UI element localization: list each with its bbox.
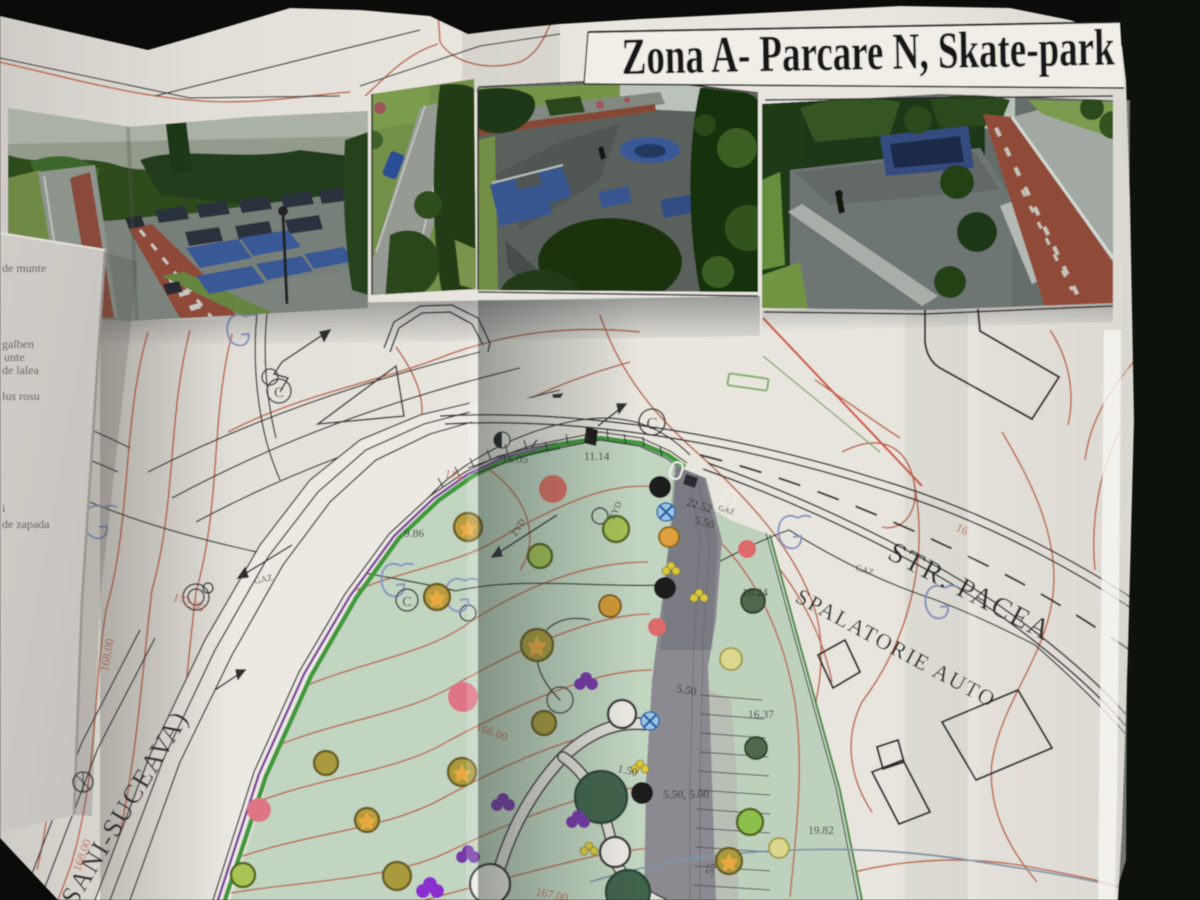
svg-text:lus rosu: lus rosu bbox=[2, 389, 40, 403]
svg-text:19.82: 19.82 bbox=[808, 825, 834, 837]
svg-text:18.24: 18.24 bbox=[742, 587, 768, 599]
svg-text:C: C bbox=[274, 385, 284, 401]
svg-text:galben: galben bbox=[2, 337, 34, 351]
svg-text:Zona A- Parcare N, Skate-park: Zona A- Parcare N, Skate-park bbox=[621, 20, 1115, 86]
svg-text:9.86: 9.86 bbox=[404, 528, 424, 540]
svg-text:unte: unte bbox=[4, 350, 25, 364]
svg-text:5.50, 5.00: 5.50, 5.00 bbox=[663, 789, 709, 801]
svg-text:de zapada: de zapada bbox=[2, 517, 50, 531]
svg-text:de lalea: de lalea bbox=[2, 363, 40, 377]
svg-text:16.37: 16.37 bbox=[748, 709, 774, 721]
svg-text:C: C bbox=[402, 595, 411, 610]
svg-text:de munte: de munte bbox=[2, 261, 46, 275]
